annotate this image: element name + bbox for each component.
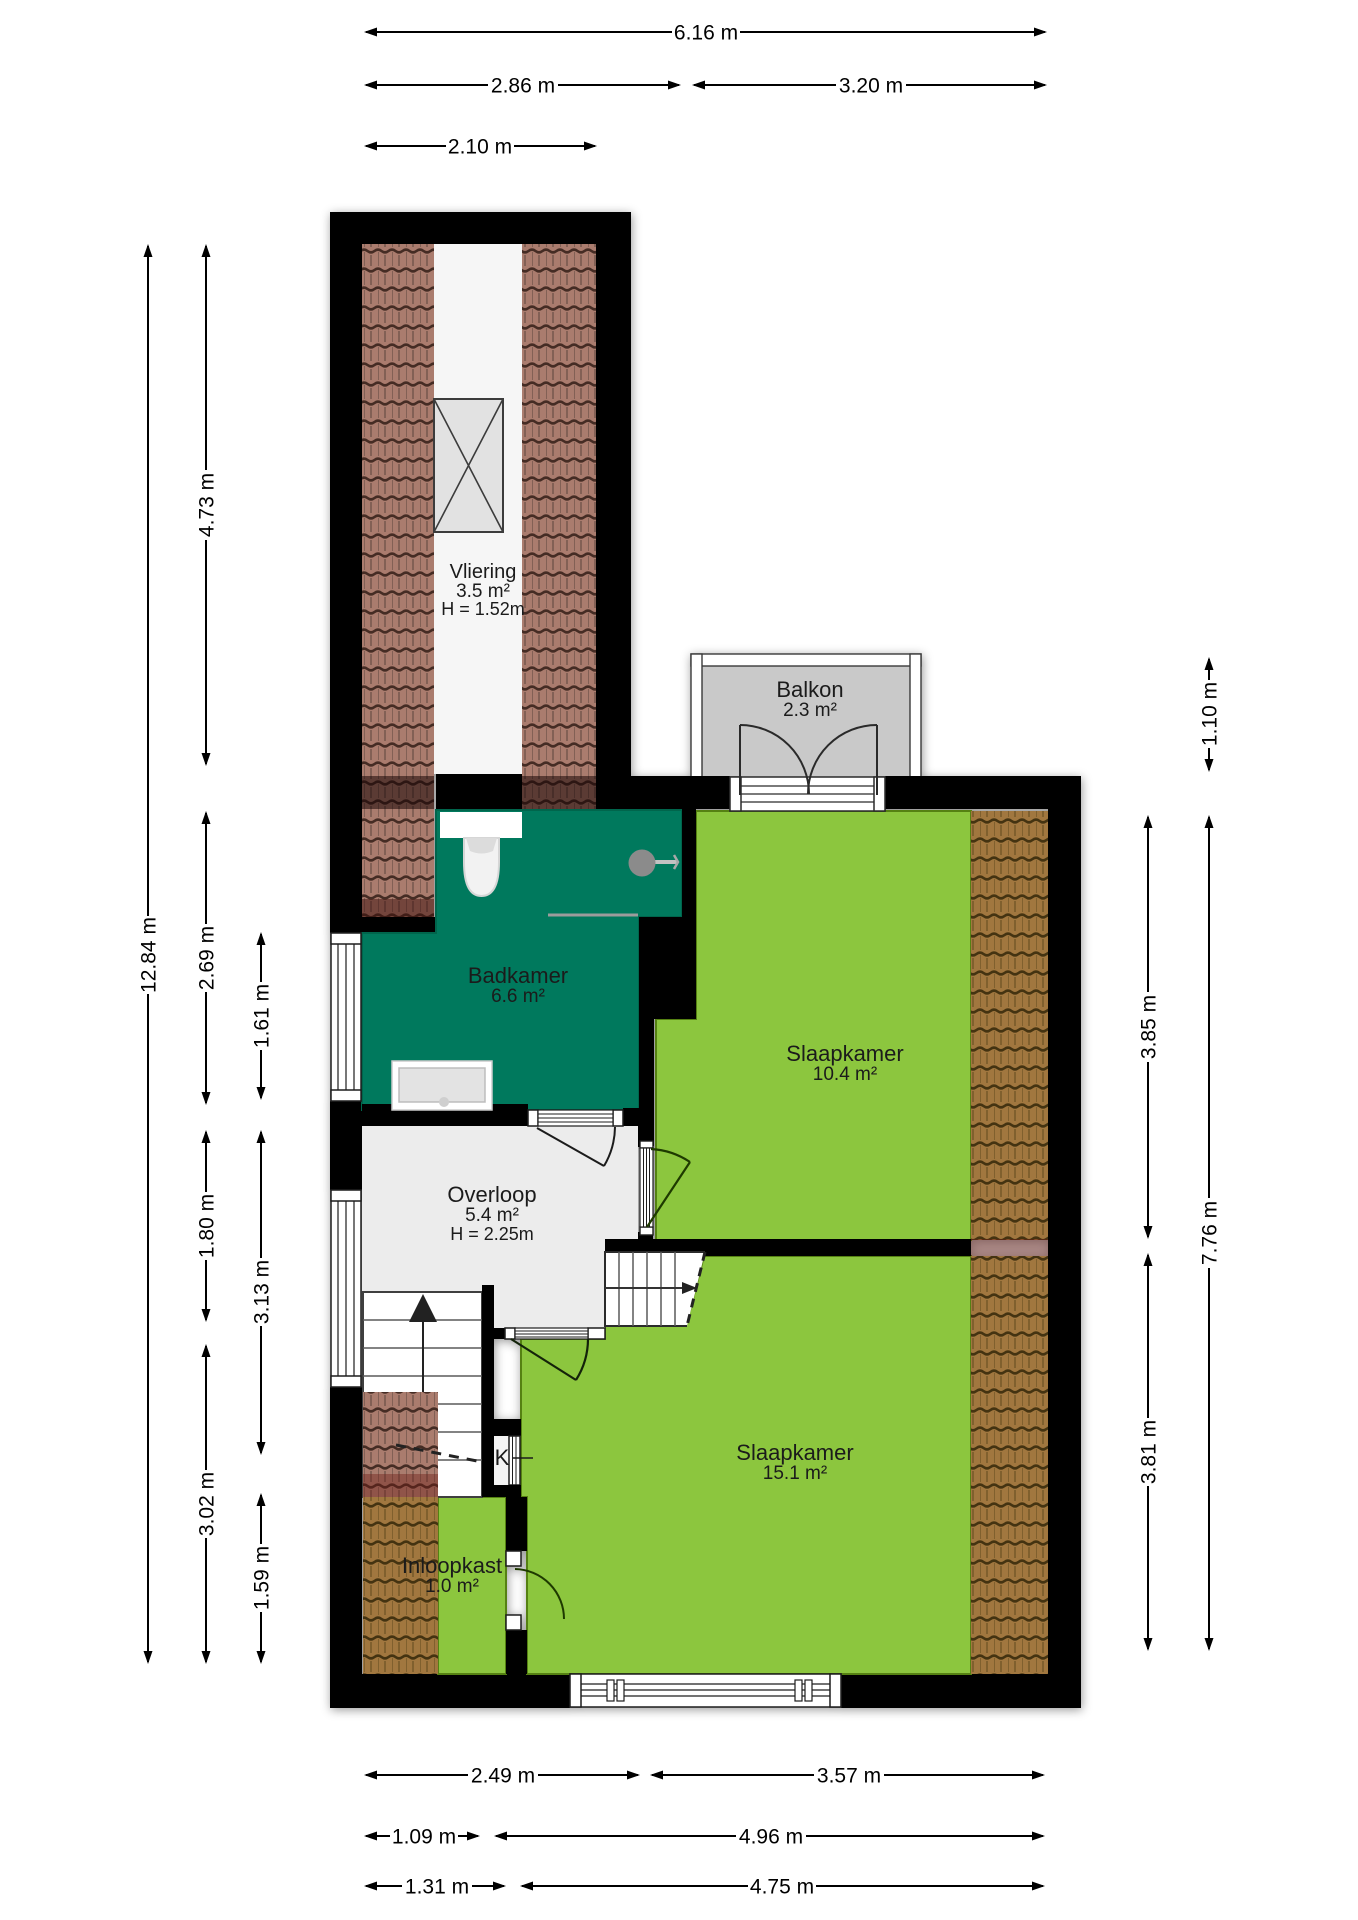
svg-text:1.80 m: 1.80 m <box>196 1194 219 1258</box>
svg-text:2.10 m: 2.10 m <box>448 136 512 159</box>
svg-text:3.81 m: 3.81 m <box>1138 1420 1161 1484</box>
svg-text:Vliering: Vliering <box>450 561 517 583</box>
svg-text:3.20 m: 3.20 m <box>839 75 903 98</box>
svg-text:1.09 m: 1.09 m <box>392 1826 456 1849</box>
svg-text:Balkon: Balkon <box>776 677 843 702</box>
svg-text:2.69 m: 2.69 m <box>196 926 219 990</box>
svg-text:1.10 m: 1.10 m <box>1199 682 1222 746</box>
svg-text:6.16 m: 6.16 m <box>674 22 738 45</box>
svg-text:1.59 m: 1.59 m <box>251 1546 274 1610</box>
svg-text:15.1 m²: 15.1 m² <box>763 1463 827 1484</box>
svg-text:4.96 m: 4.96 m <box>739 1826 803 1849</box>
svg-text:Slaapkamer: Slaapkamer <box>736 1440 853 1465</box>
svg-text:K: K <box>495 1445 510 1470</box>
svg-text:12.84 m: 12.84 m <box>138 917 161 993</box>
svg-text:H = 1.52m: H = 1.52m <box>441 599 525 619</box>
svg-text:6.6 m²: 6.6 m² <box>491 986 545 1007</box>
svg-text:Badkamer: Badkamer <box>468 963 568 988</box>
svg-text:4.75 m: 4.75 m <box>750 1876 814 1899</box>
svg-text:3.13 m: 3.13 m <box>251 1260 274 1324</box>
svg-text:1.61 m: 1.61 m <box>251 984 274 1048</box>
svg-text:2.86 m: 2.86 m <box>491 75 555 98</box>
svg-text:4.73 m: 4.73 m <box>196 473 219 537</box>
svg-text:2.3 m²: 2.3 m² <box>783 700 837 721</box>
svg-text:1.0 m²: 1.0 m² <box>425 1576 479 1597</box>
svg-text:5.4 m²: 5.4 m² <box>465 1205 519 1226</box>
svg-text:Overloop: Overloop <box>447 1182 536 1207</box>
svg-text:3.85 m: 3.85 m <box>1138 995 1161 1059</box>
svg-text:H = 2.25m: H = 2.25m <box>450 1224 534 1244</box>
svg-text:2.49 m: 2.49 m <box>471 1765 535 1788</box>
svg-text:Inloopkast: Inloopkast <box>402 1553 502 1578</box>
svg-text:3.02 m: 3.02 m <box>196 1472 219 1536</box>
svg-text:10.4 m²: 10.4 m² <box>813 1064 877 1085</box>
svg-text:3.57 m: 3.57 m <box>817 1765 881 1788</box>
svg-text:7.76 m: 7.76 m <box>1199 1201 1222 1265</box>
svg-text:1.31 m: 1.31 m <box>405 1876 469 1899</box>
svg-text:Slaapkamer: Slaapkamer <box>786 1041 903 1066</box>
